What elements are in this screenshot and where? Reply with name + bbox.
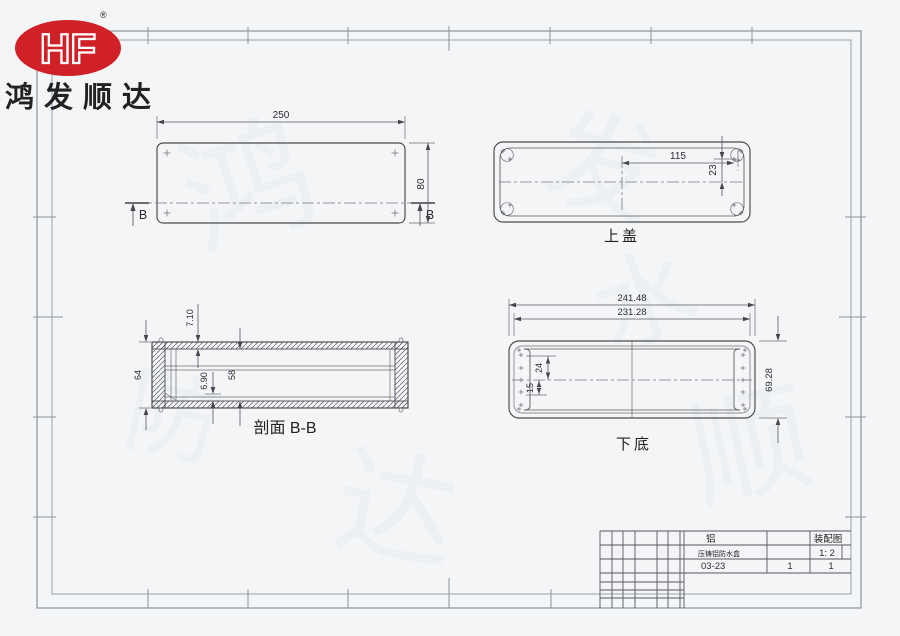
- dim-text: 6.90: [199, 372, 209, 390]
- scale-cell: 1: 2: [819, 548, 835, 559]
- frame-ticks-top: [148, 27, 752, 44]
- hatch-right-wall: [395, 342, 408, 408]
- drawing-type-cell: 装配图: [814, 533, 843, 545]
- hatch-bottom-wall: [152, 401, 408, 408]
- hole-mark: [735, 157, 742, 164]
- view-label-bottom-base: 下底: [616, 436, 652, 453]
- view-label-top-cover: 上盖: [604, 228, 640, 245]
- hatch-left-wall: [152, 342, 165, 408]
- dim-text: 69.28: [764, 368, 775, 392]
- frame-ticks-bottom: [148, 589, 551, 608]
- dim-text: 64: [133, 370, 143, 380]
- registered-trademark-icon: ®: [100, 10, 107, 20]
- material-cell: 铝: [706, 533, 716, 545]
- dim-text: 115: [670, 151, 686, 162]
- dim-text: 241.48: [617, 293, 646, 304]
- drawing-code-cell: 03-23: [701, 561, 725, 572]
- frame-ticks-right: [845, 217, 866, 517]
- logo-monogram: HF: [40, 25, 96, 72]
- dim-text: 24: [534, 363, 544, 373]
- section-label-left: B: [139, 208, 147, 222]
- dim-text: 58: [227, 370, 237, 380]
- svg-text:发: 发: [534, 94, 672, 241]
- dim-hole-top-24: 24: [526, 356, 556, 380]
- hatch-top-wall: [152, 342, 408, 349]
- sheets-total-cell: 1: [828, 561, 833, 572]
- left-boss-channel: [524, 349, 530, 410]
- dim-text: 7.10: [185, 309, 195, 327]
- engineering-drawing: 鸿 发 顺 达 水 防 HF ® 鸿发顺达 B B: [0, 0, 900, 636]
- dim-text: 15: [525, 383, 535, 393]
- title-block: 铝 装配图 压铸铝防水盒 1: 2 03-23 1 1: [600, 531, 851, 608]
- dim-text: 231.28: [617, 307, 646, 318]
- view-label-section: 剖面 B-B: [253, 419, 316, 437]
- dim-text: 80: [416, 178, 427, 190]
- dim-wall-7-10: 7.10: [185, 304, 200, 368]
- dim-text: 23: [708, 164, 719, 176]
- dim-hole-bottom-15: 15: [525, 380, 547, 395]
- revision-grid-verticals: [600, 531, 684, 608]
- product-name-cell: 压铸铝防水盒: [698, 549, 740, 558]
- svg-text:达: 达: [325, 434, 466, 587]
- dim-text: 250: [273, 110, 290, 121]
- svg-text:鸿: 鸿: [164, 98, 333, 277]
- company-name: 鸿发顺达: [5, 80, 161, 114]
- sheet-cell: 1: [787, 561, 792, 572]
- arrowheads: [238, 342, 243, 408]
- company-logo: HF ® 鸿发顺达: [5, 10, 161, 114]
- dim-offset-23: 23: [708, 136, 735, 196]
